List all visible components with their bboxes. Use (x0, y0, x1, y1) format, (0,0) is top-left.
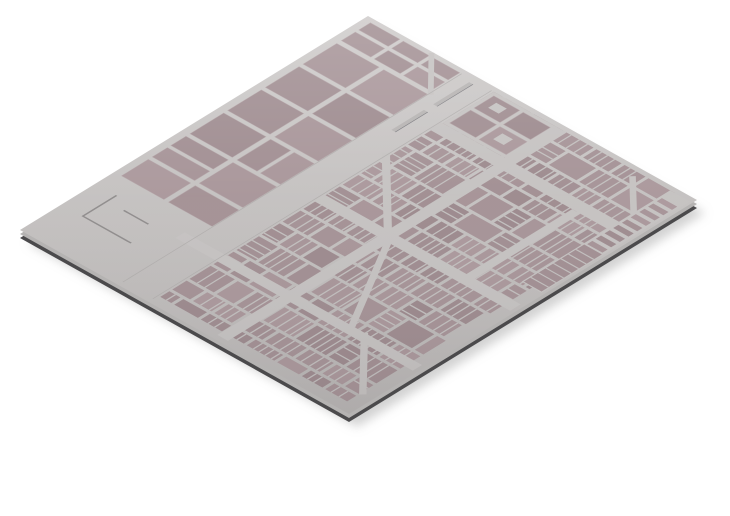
render-stage (0, 0, 730, 516)
map-3d-render[interactable] (0, 0, 730, 516)
plate-top-face (20, 16, 697, 414)
lighting-overlay (20, 16, 697, 414)
